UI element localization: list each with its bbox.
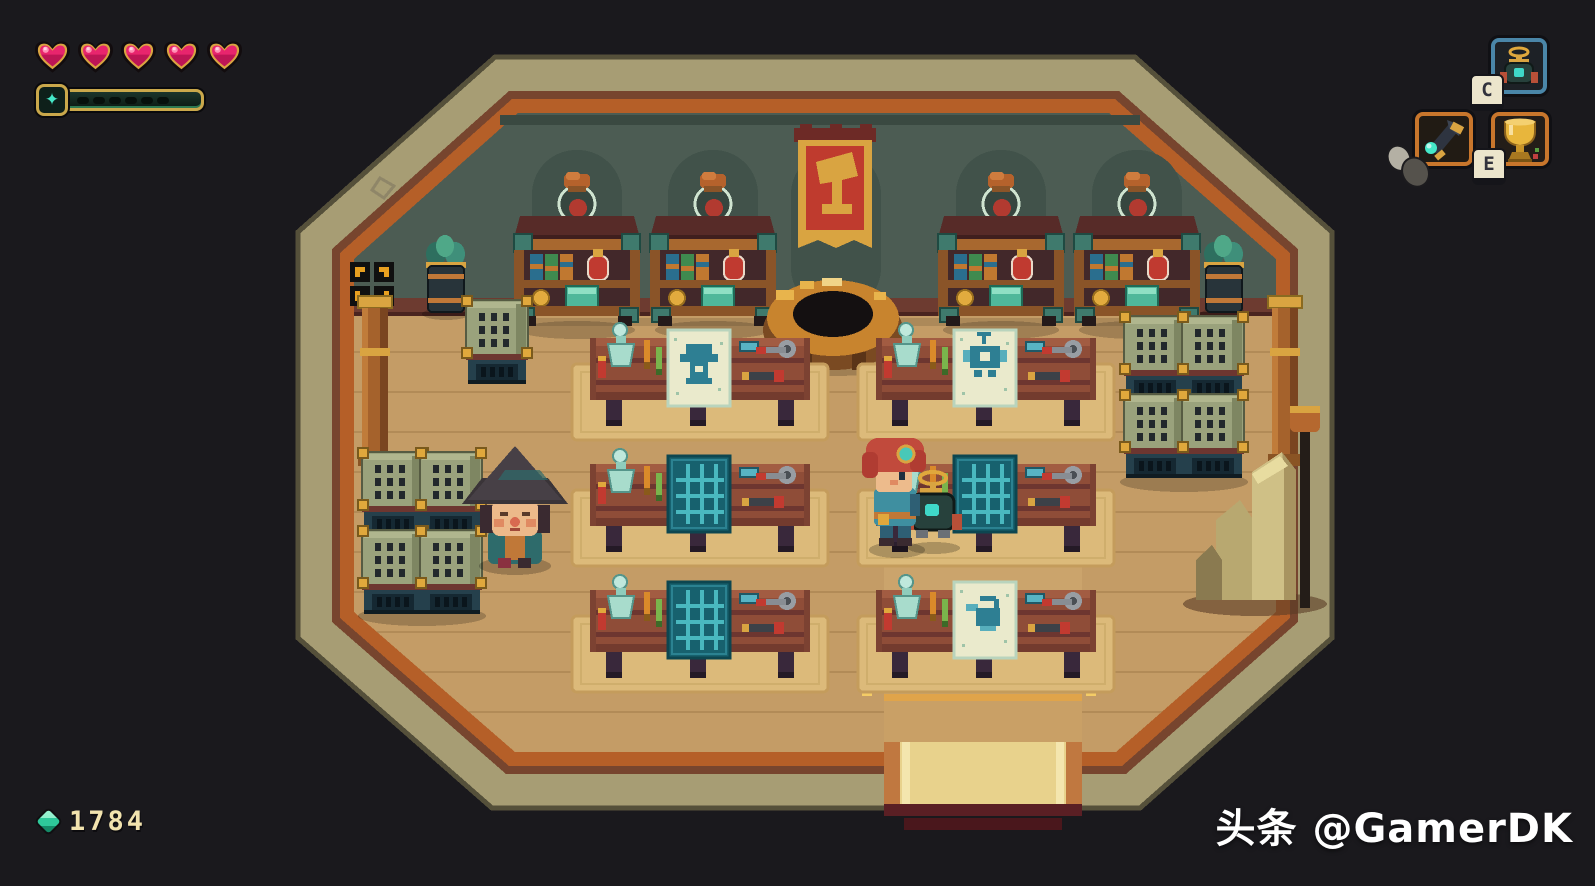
game-viewport[interactable]: ✦ 1784 C [0,0,1595,886]
keycap-e: E [1472,148,1506,185]
energy-segment [125,97,137,104]
energy-segment [141,97,153,104]
pillar-right [1268,296,1302,466]
energy-segment [93,97,105,104]
workbench-6[interactable] [858,575,1114,692]
energy-meter: ✦ [36,84,204,116]
keycap-c-label: C [1481,79,1492,101]
heart-icon [120,40,157,74]
watermark-text: 头条 @GamerDK [1216,796,1573,854]
hammer-banner [794,124,876,248]
heart-icon [34,40,71,74]
currency-counter: 1784 [40,806,146,837]
shop-entrance[interactable] [862,686,1096,830]
crate-stack-left [358,448,486,626]
supply-crate-single [462,296,532,384]
mouse-icon [1388,138,1432,194]
currency-amount: 1784 [69,806,146,837]
energy-segment [109,97,121,104]
heart-icon [206,40,243,74]
workbench-3[interactable] [572,449,828,566]
spark-star-icon: ✦ [36,84,68,116]
plant-barrel-left [422,235,470,320]
keycap-e-label: E [1483,153,1494,175]
crate-stack-right [1120,312,1248,492]
heart-icon [163,40,200,74]
keycap-c: C [1470,74,1504,111]
scene-canvas [0,0,1595,886]
health-hearts [34,40,243,74]
plant-barrel-right [1200,235,1248,320]
energy-segment [157,97,169,104]
workbench-1[interactable] [572,323,828,440]
workbench-2[interactable] [858,323,1114,440]
workbench-5[interactable] [572,575,828,692]
energy-segment [77,97,89,104]
pillar-left [358,296,392,466]
heart-icon [77,40,114,74]
gem-icon [36,809,60,833]
energy-bar-track [64,89,204,111]
